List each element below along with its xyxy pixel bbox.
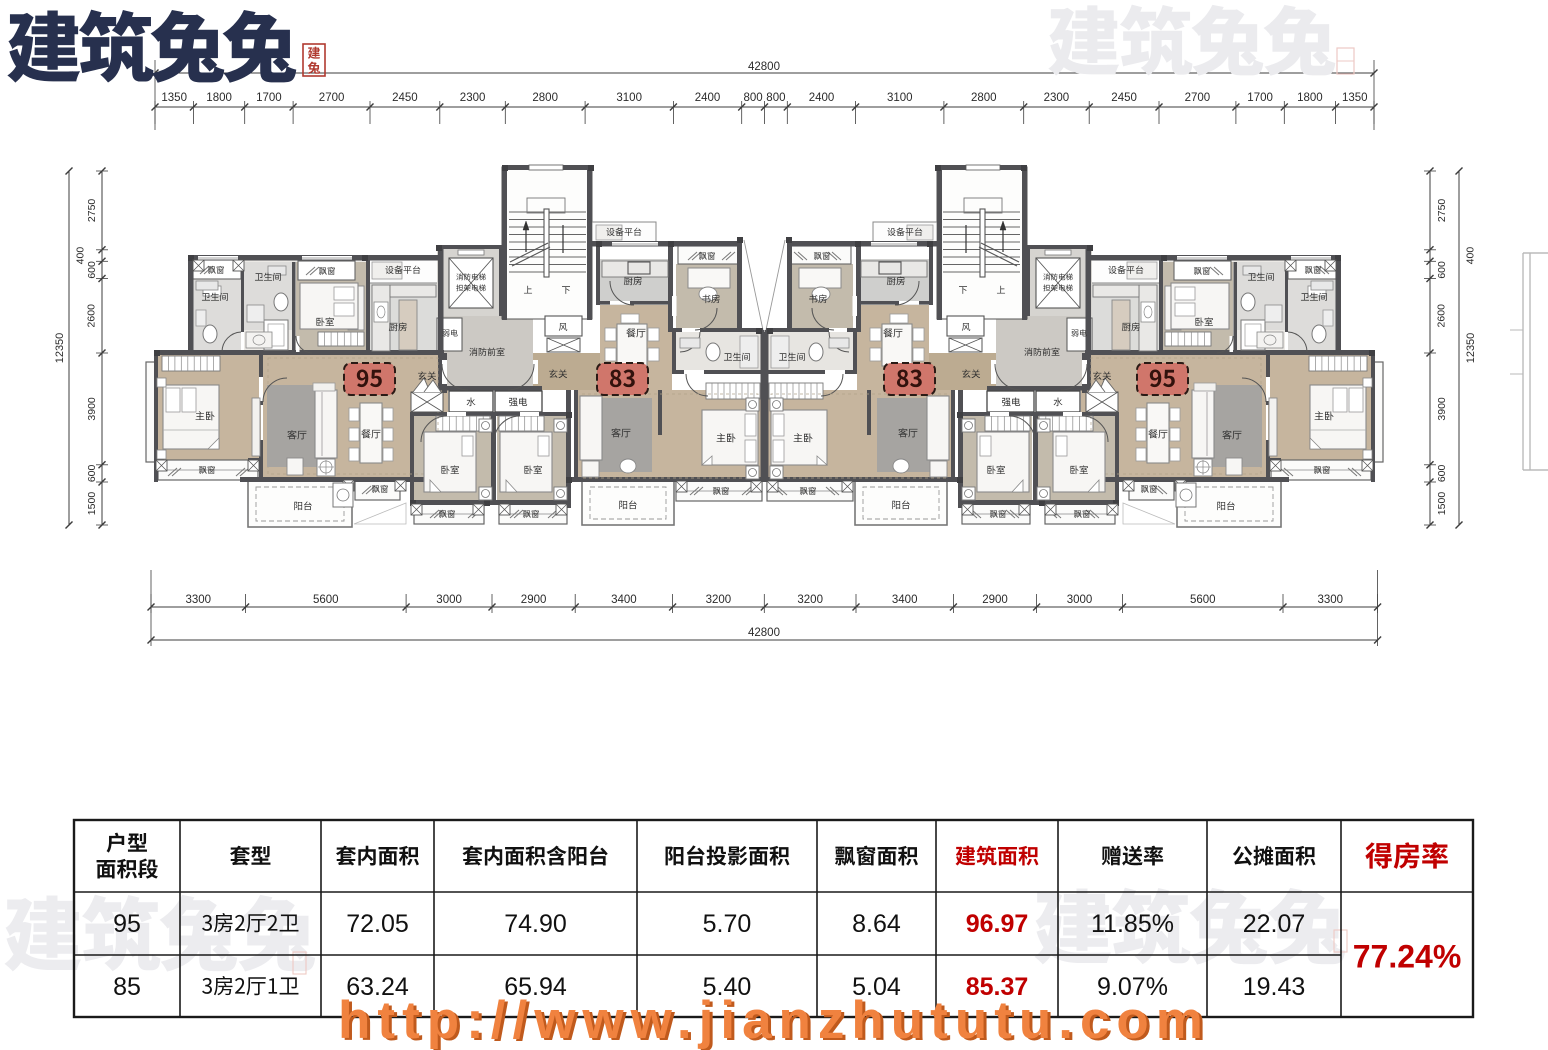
svg-text:2900: 2900 [982, 594, 1008, 606]
svg-text:19.43: 19.43 [1243, 973, 1306, 1001]
svg-text:3000: 3000 [436, 594, 462, 606]
svg-text:3100: 3100 [616, 92, 642, 104]
svg-text:600: 600 [1436, 261, 1448, 279]
svg-text:2400: 2400 [695, 92, 721, 104]
svg-text:2750: 2750 [1436, 199, 1448, 223]
svg-text:96.97: 96.97 [966, 910, 1029, 938]
svg-text:1500: 1500 [86, 492, 98, 516]
svg-text:3000: 3000 [1067, 594, 1093, 606]
svg-text:5.70: 5.70 [703, 910, 752, 938]
svg-text:42800: 42800 [748, 61, 780, 73]
svg-text:1350: 1350 [1342, 92, 1368, 104]
svg-text:2750: 2750 [86, 199, 98, 223]
svg-text:85: 85 [113, 973, 141, 1001]
svg-text:1700: 1700 [1247, 92, 1273, 104]
svg-text:2400: 2400 [809, 92, 835, 104]
svg-text:2800: 2800 [532, 92, 558, 104]
svg-text:95: 95 [113, 910, 141, 938]
svg-text:22.07: 22.07 [1243, 910, 1306, 938]
svg-text:400: 400 [1465, 247, 1477, 265]
svg-text:2700: 2700 [1185, 92, 1211, 104]
svg-text:http://www.jianzhututu.com: http://www.jianzhututu.com [338, 991, 1210, 1050]
svg-text:3300: 3300 [1318, 594, 1344, 606]
svg-text:5600: 5600 [313, 594, 339, 606]
svg-text:2300: 2300 [460, 92, 486, 104]
svg-text:1700: 1700 [256, 92, 282, 104]
svg-text:600: 600 [86, 261, 98, 279]
svg-text:1350: 1350 [161, 92, 187, 104]
svg-text:2700: 2700 [319, 92, 345, 104]
svg-text:2900: 2900 [521, 594, 547, 606]
svg-text:3400: 3400 [892, 594, 918, 606]
svg-text:3100: 3100 [887, 92, 913, 104]
svg-text:5600: 5600 [1190, 594, 1216, 606]
svg-text:800: 800 [766, 92, 785, 104]
svg-text:3400: 3400 [611, 594, 637, 606]
svg-text:2800: 2800 [971, 92, 997, 104]
svg-text:1800: 1800 [206, 92, 232, 104]
svg-text:74.90: 74.90 [504, 910, 567, 938]
svg-text:600: 600 [86, 464, 98, 482]
svg-text:12350: 12350 [1465, 333, 1477, 364]
svg-text:2450: 2450 [392, 92, 418, 104]
svg-text:8.64: 8.64 [852, 910, 901, 938]
svg-text:77.24%: 77.24% [1353, 939, 1462, 975]
svg-text:11.85%: 11.85% [1091, 910, 1174, 938]
svg-text:72.05: 72.05 [346, 910, 409, 938]
svg-text:3900: 3900 [1436, 397, 1448, 421]
svg-text:3300: 3300 [186, 594, 212, 606]
svg-text:2300: 2300 [1044, 92, 1070, 104]
svg-text:12350: 12350 [54, 333, 66, 364]
svg-text:2450: 2450 [1111, 92, 1137, 104]
svg-text:800: 800 [744, 92, 763, 104]
svg-text:3200: 3200 [706, 594, 732, 606]
svg-text:1800: 1800 [1297, 92, 1323, 104]
svg-text:3200: 3200 [797, 594, 823, 606]
svg-text:600: 600 [1436, 464, 1448, 482]
svg-text:1500: 1500 [1436, 492, 1448, 516]
svg-text:2600: 2600 [1436, 304, 1448, 328]
svg-text:2600: 2600 [86, 304, 98, 328]
svg-text:3900: 3900 [86, 397, 98, 421]
svg-text:42800: 42800 [748, 627, 780, 639]
